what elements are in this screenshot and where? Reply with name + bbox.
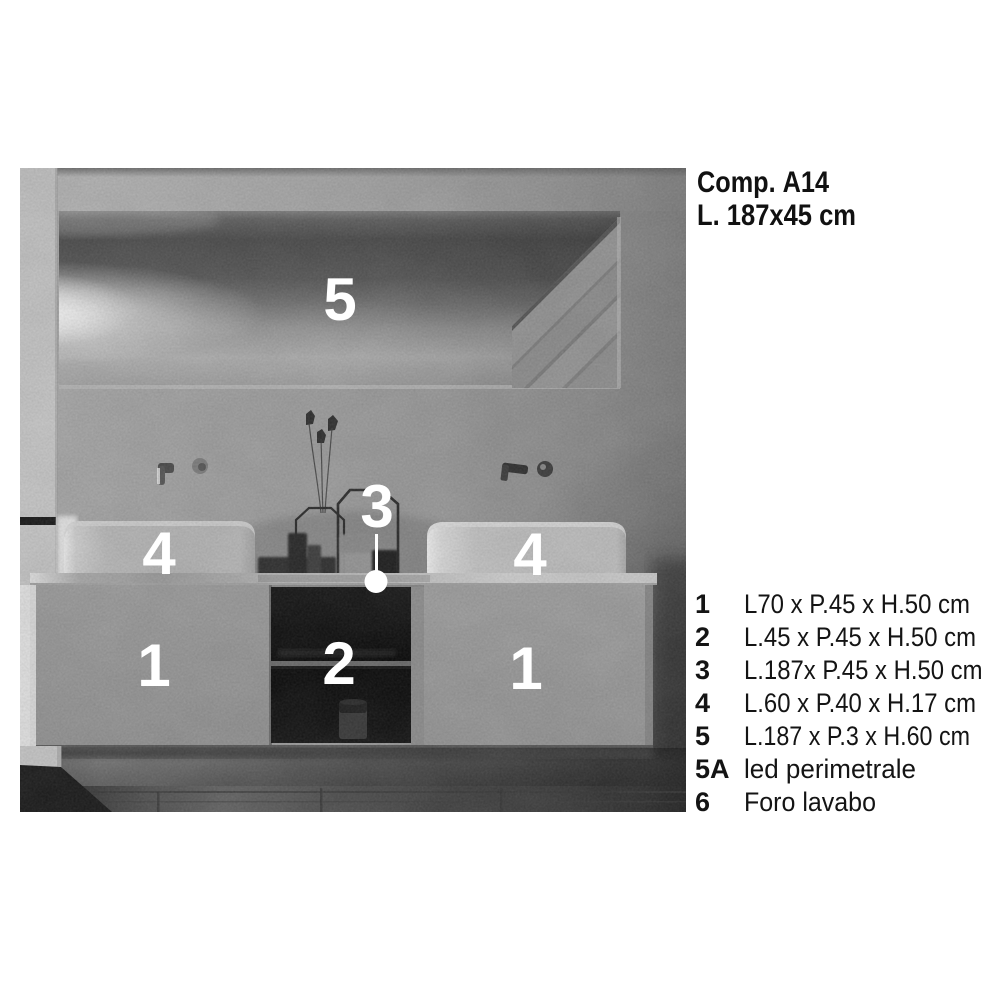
svg-text:5: 5 [323,266,356,333]
svg-text:1: 1 [137,632,170,699]
svg-text:1: 1 [509,635,542,702]
svg-text:4: 4 [513,521,547,588]
svg-text:2: 2 [322,630,355,697]
svg-text:3: 3 [360,473,393,540]
svg-text:4: 4 [142,520,176,587]
